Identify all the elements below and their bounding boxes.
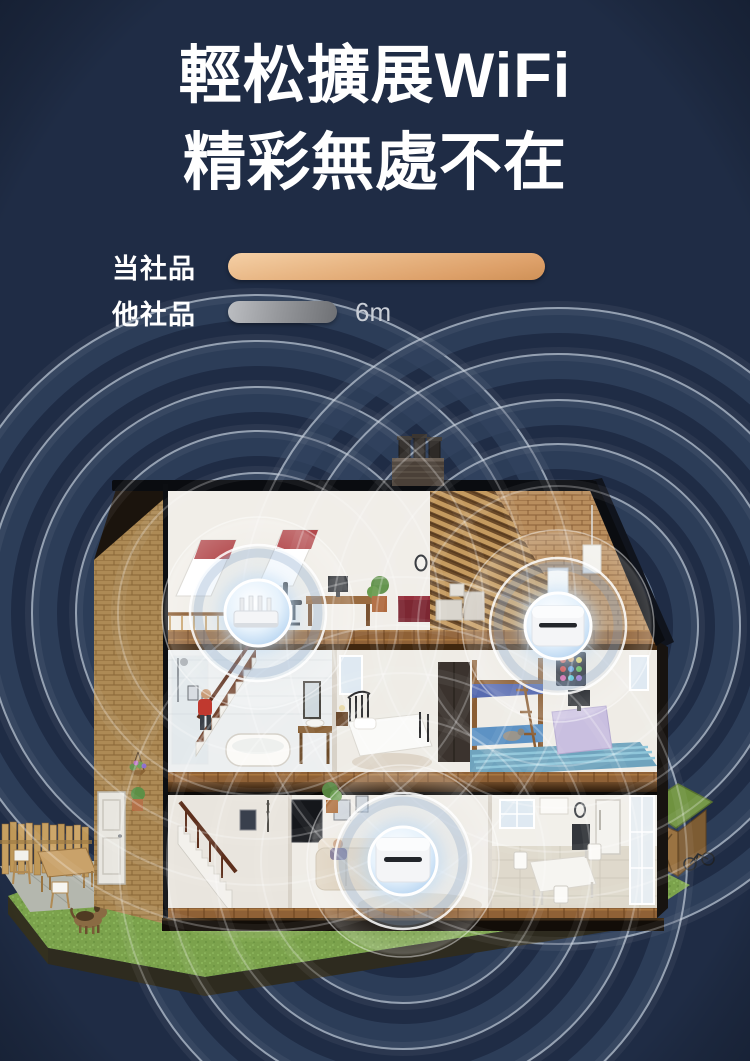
- competitor-distance-label: 6m: [355, 297, 391, 328]
- promo-banner: .rb{fill:none;stroke:#32435f;stroke-opac…: [0, 0, 750, 1061]
- comparison-row-ours: 当社品: [112, 249, 545, 283]
- competitor-label: 他社品: [112, 293, 207, 332]
- comparison-row-theirs: 他社品 6m: [112, 295, 545, 329]
- competitor-coverage-bar: [228, 301, 337, 323]
- coverage-comparison: 当社品 他社品 6m: [112, 249, 545, 341]
- our-product-label: 当社品: [112, 247, 207, 286]
- title-line-2: 精彩無處不在: [0, 120, 750, 207]
- our-product-coverage-bar: [228, 253, 545, 280]
- title-line-1: 輕松擴展WiFi: [0, 33, 750, 120]
- headline: 輕松擴展WiFi 精彩無處不在: [0, 33, 750, 207]
